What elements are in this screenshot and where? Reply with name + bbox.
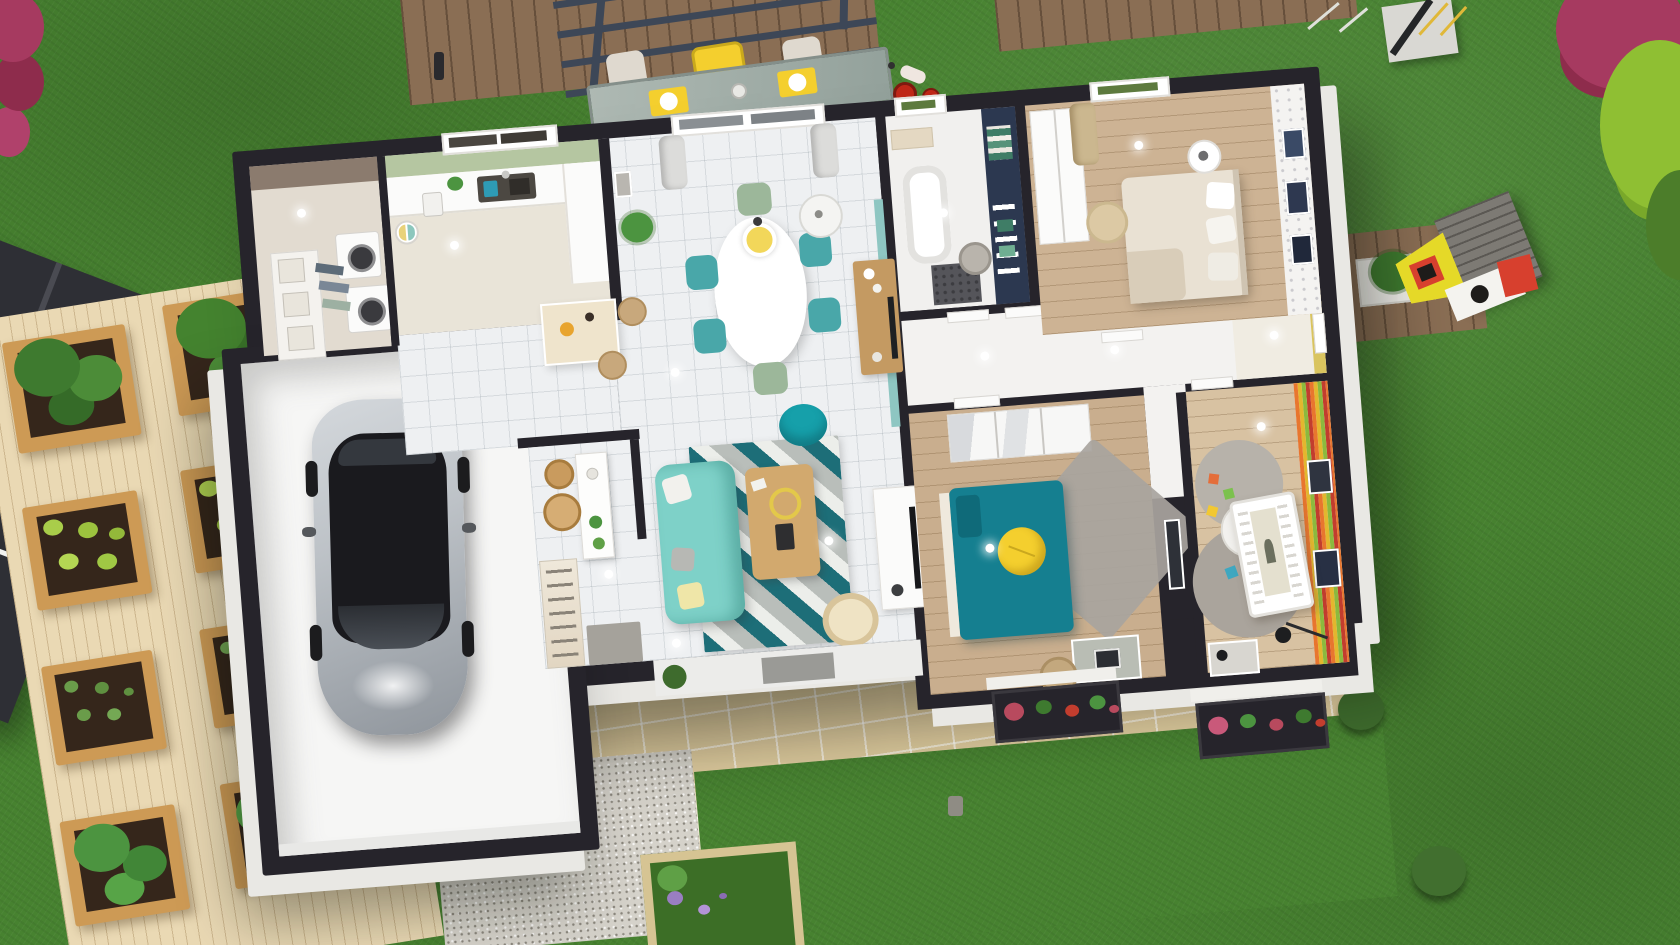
console-decor bbox=[586, 467, 599, 480]
laundry-basket bbox=[278, 258, 306, 284]
vase bbox=[872, 352, 883, 363]
playhouse-porthole bbox=[1468, 282, 1491, 305]
green-towel bbox=[999, 245, 1016, 257]
bed-pillow bbox=[1206, 182, 1236, 210]
shoe-rows bbox=[546, 568, 579, 658]
bed-pillow bbox=[1205, 214, 1237, 245]
magazine bbox=[751, 478, 767, 492]
console-plant bbox=[592, 537, 605, 550]
dining-chair-teal bbox=[807, 297, 842, 333]
flower-bed-plant bbox=[656, 864, 688, 893]
bed-blanket-fold bbox=[1127, 248, 1187, 304]
framed-picture bbox=[614, 171, 633, 198]
crib-decal-tree bbox=[1263, 538, 1276, 563]
bathroom-window-glass bbox=[901, 100, 936, 111]
console-plant bbox=[589, 515, 603, 529]
planter-box-lettuce bbox=[22, 490, 153, 611]
coffee-table bbox=[744, 463, 821, 580]
planter-soil bbox=[54, 661, 153, 752]
dining-chair-teal bbox=[685, 254, 720, 290]
ceiling-spot bbox=[1269, 330, 1279, 340]
sofa-pillow-gray bbox=[671, 547, 695, 571]
planter-box-sprouts bbox=[41, 650, 167, 766]
coffee-machine bbox=[422, 192, 444, 217]
flower-box-frame bbox=[1195, 692, 1329, 759]
wall-frame bbox=[1307, 459, 1334, 495]
table-tray bbox=[775, 523, 795, 550]
hanging-clothes bbox=[318, 281, 349, 294]
kitchen-clock bbox=[394, 220, 420, 246]
kids-desk-lamp bbox=[1216, 649, 1228, 661]
wall-frame bbox=[1313, 548, 1342, 588]
teal-bed bbox=[949, 480, 1075, 640]
coffee-cup bbox=[585, 312, 595, 322]
planter-box-tomato bbox=[2, 324, 142, 454]
wardrobe-door-line bbox=[1053, 110, 1065, 242]
dining-chair-teal bbox=[693, 318, 728, 354]
wall-frame bbox=[1281, 128, 1305, 160]
wardrobe-door-line bbox=[1040, 408, 1046, 454]
lamp-center bbox=[814, 210, 823, 219]
flower-bed bbox=[640, 841, 806, 945]
sofa-pillow-white bbox=[661, 473, 693, 505]
bathroom-window bbox=[894, 94, 947, 118]
faucet bbox=[501, 170, 510, 179]
curtain bbox=[810, 123, 840, 179]
ceiling-spot bbox=[450, 240, 460, 250]
ceiling-spot bbox=[297, 208, 307, 218]
vase bbox=[872, 283, 882, 293]
sofa-pillow-yellow bbox=[676, 581, 705, 610]
kids-desk bbox=[1208, 639, 1261, 677]
car-mirror bbox=[462, 523, 476, 533]
room-bathroom bbox=[885, 106, 1030, 312]
wall-frame bbox=[1290, 234, 1314, 266]
teal-pillow bbox=[955, 494, 982, 538]
flowers-purple bbox=[666, 890, 683, 905]
potted-shrub bbox=[1338, 688, 1384, 730]
bathroom-vanity bbox=[890, 127, 933, 150]
flower-box-frame bbox=[991, 680, 1123, 743]
porch-plant bbox=[662, 664, 688, 690]
dryer bbox=[345, 284, 392, 333]
car-mirror bbox=[302, 527, 316, 537]
cushion-seam bbox=[1008, 545, 1035, 557]
dining-chair-sage bbox=[752, 361, 788, 396]
vase bbox=[863, 268, 875, 280]
potted-shrub bbox=[1412, 846, 1466, 896]
dryer-door bbox=[357, 296, 387, 326]
box-flowers bbox=[1003, 702, 1024, 722]
garden-floorplan-scene bbox=[0, 0, 1680, 945]
box-flowers bbox=[1207, 716, 1228, 736]
patio-door-glass bbox=[679, 115, 744, 130]
pendant-bulb bbox=[753, 217, 763, 227]
sink-basin bbox=[509, 178, 530, 196]
playhouse-window-glass bbox=[1417, 263, 1437, 282]
kitchen-sink bbox=[477, 172, 537, 202]
house bbox=[232, 66, 1363, 710]
clock-half-teal bbox=[407, 224, 415, 240]
doormat bbox=[586, 621, 643, 665]
table-wreath bbox=[768, 486, 802, 520]
bollard-light-deck bbox=[434, 52, 444, 80]
dish-rack-teal bbox=[483, 180, 498, 197]
tricycle-handlebar bbox=[888, 62, 895, 69]
laundry-basket bbox=[287, 325, 315, 351]
washer-door bbox=[347, 243, 377, 273]
bedroom-curtain bbox=[1069, 102, 1100, 166]
tv-sideboard-wood bbox=[853, 258, 904, 375]
planter-soil bbox=[36, 503, 137, 596]
laundry-basket bbox=[282, 291, 310, 317]
porch-doormat bbox=[761, 652, 835, 684]
clock-half-yellow bbox=[398, 225, 406, 241]
wall-frame bbox=[1285, 180, 1311, 216]
dining-chair-sage bbox=[736, 182, 772, 217]
bed-pillow bbox=[1208, 252, 1238, 280]
window-flower-box bbox=[986, 667, 1121, 744]
fruit-bowl bbox=[559, 322, 574, 337]
car-wheel bbox=[305, 461, 318, 497]
kitchen-window-glass bbox=[500, 130, 547, 144]
pergola-post bbox=[840, 0, 849, 29]
bollard-light bbox=[948, 796, 963, 816]
window-flower-box bbox=[1190, 678, 1328, 759]
car-wheel bbox=[461, 621, 474, 657]
wardrobe-door-line bbox=[994, 412, 1000, 458]
towel-shelf bbox=[986, 125, 1013, 161]
carafe bbox=[730, 82, 748, 100]
green-towel bbox=[997, 219, 1014, 232]
room-laundry bbox=[249, 157, 392, 356]
toy-block bbox=[1208, 473, 1219, 484]
planter-box-herbs bbox=[59, 804, 190, 927]
patio-door-glass bbox=[751, 109, 816, 124]
master-bed bbox=[1121, 169, 1249, 304]
decor-dark bbox=[891, 584, 904, 597]
car-wheel bbox=[310, 625, 323, 661]
bedroom-window-glass bbox=[1098, 82, 1158, 95]
yellow-round-cushion bbox=[996, 525, 1048, 577]
curtain bbox=[658, 134, 688, 190]
sofa bbox=[654, 460, 746, 626]
table-lamp bbox=[1198, 150, 1209, 161]
car-wheel bbox=[457, 457, 470, 493]
kitchen-window-glass bbox=[449, 134, 498, 148]
tv-on-sideboard bbox=[887, 297, 898, 359]
